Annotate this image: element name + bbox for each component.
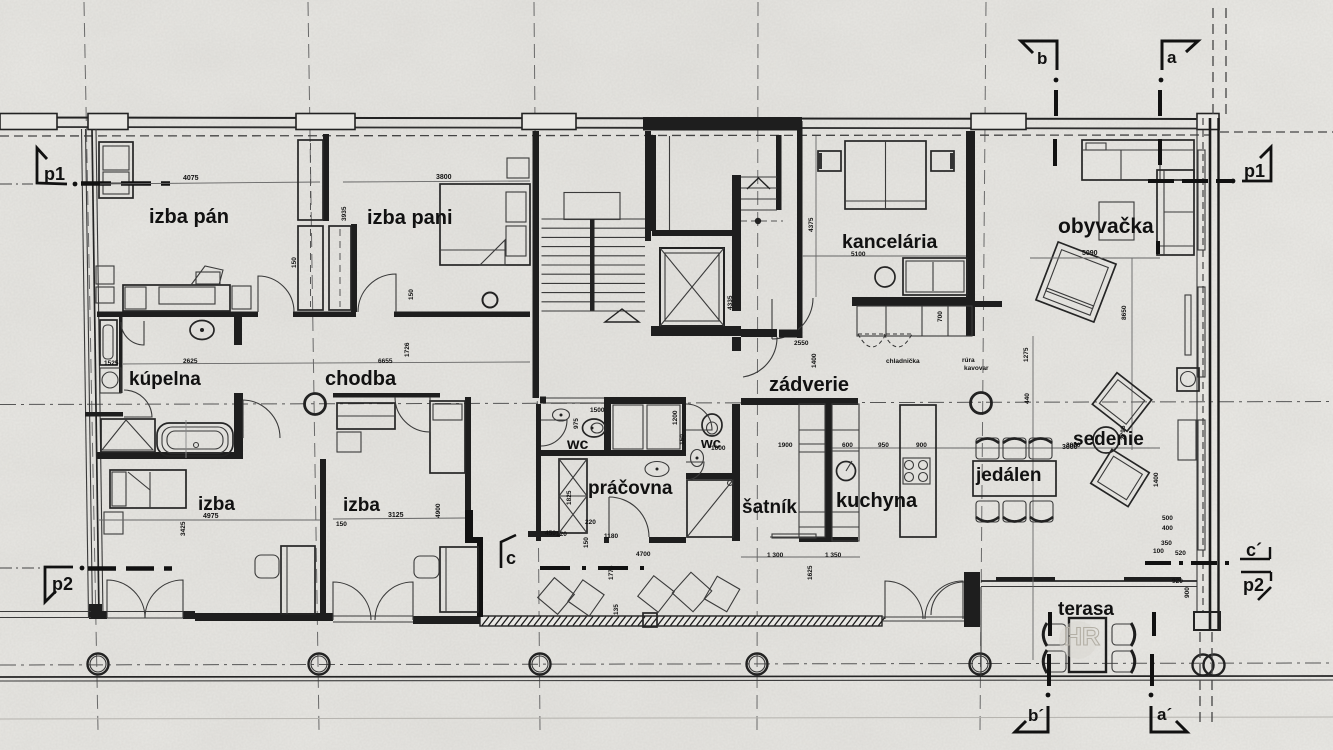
svg-text:chodba: chodba xyxy=(325,368,397,390)
svg-text:4700: 4700 xyxy=(636,551,651,558)
svg-text:4900: 4900 xyxy=(435,503,442,518)
svg-text:1775: 1775 xyxy=(608,565,615,580)
svg-text:975: 975 xyxy=(573,418,580,429)
svg-text:450: 450 xyxy=(545,530,556,537)
svg-text:c: c xyxy=(506,548,516,568)
svg-text:3125: 3125 xyxy=(388,512,404,519)
svg-text:2796: 2796 xyxy=(1120,425,1127,440)
svg-text:4375: 4375 xyxy=(808,217,815,232)
svg-text:100: 100 xyxy=(1153,548,1164,555)
svg-text:1400: 1400 xyxy=(1153,472,1160,487)
svg-text:900: 900 xyxy=(916,442,927,449)
svg-text:440: 440 xyxy=(1024,393,1031,404)
svg-text:kuchyna: kuchyna xyxy=(836,490,918,512)
svg-text:izba: izba xyxy=(198,494,235,515)
svg-text:1400: 1400 xyxy=(811,353,818,368)
svg-text:práčovna: práčovna xyxy=(588,478,673,499)
svg-text:obyvačka: obyvačka xyxy=(1058,215,1154,238)
svg-text:5100: 5100 xyxy=(851,251,866,258)
svg-text:1825: 1825 xyxy=(566,490,573,505)
svg-text:700: 700 xyxy=(937,311,944,322)
svg-text:220: 220 xyxy=(585,519,596,526)
svg-text:120: 120 xyxy=(556,531,567,538)
svg-text:4335: 4335 xyxy=(727,295,734,310)
svg-text:izba pani: izba pani xyxy=(367,207,453,229)
svg-text:p1: p1 xyxy=(1244,161,1265,181)
svg-text:kavovar: kavovar xyxy=(964,365,989,372)
svg-text:1525: 1525 xyxy=(104,360,119,367)
svg-text:a: a xyxy=(1167,48,1177,67)
svg-text:2550: 2550 xyxy=(794,340,809,347)
svg-text:rúra: rúra xyxy=(962,357,975,364)
svg-text:400: 400 xyxy=(1162,525,1173,532)
svg-text:5090: 5090 xyxy=(1082,250,1098,257)
svg-text:3000: 3000 xyxy=(1066,442,1081,449)
svg-text:6655: 6655 xyxy=(378,358,393,365)
svg-text:150: 150 xyxy=(583,537,590,548)
svg-text:150: 150 xyxy=(336,521,347,528)
svg-text:3425: 3425 xyxy=(180,521,187,536)
svg-text:900: 900 xyxy=(1184,587,1191,598)
svg-text:p2: p2 xyxy=(1243,575,1264,595)
svg-text:1900: 1900 xyxy=(778,442,793,449)
svg-text:p1: p1 xyxy=(44,164,65,184)
svg-text:950: 950 xyxy=(878,442,889,449)
svg-text:wc: wc xyxy=(566,436,588,453)
svg-text:a´: a´ xyxy=(1157,705,1172,724)
svg-text:izba pán: izba pán xyxy=(149,206,229,228)
svg-text:2625: 2625 xyxy=(183,358,198,365)
svg-text:1180: 1180 xyxy=(604,533,618,540)
svg-text:1 300: 1 300 xyxy=(767,552,784,559)
svg-text:3800: 3800 xyxy=(436,174,452,181)
svg-text:1 350: 1 350 xyxy=(825,552,842,559)
svg-text:zádverie: zádverie xyxy=(769,374,849,396)
svg-text:350: 350 xyxy=(1161,540,1172,547)
svg-text:500: 500 xyxy=(1162,515,1173,522)
svg-text:520: 520 xyxy=(1175,550,1186,557)
svg-text:p2: p2 xyxy=(52,574,73,594)
svg-text:4075: 4075 xyxy=(183,175,199,182)
svg-text:1000: 1000 xyxy=(711,445,726,452)
svg-text:jedálen: jedálen xyxy=(975,465,1041,486)
svg-text:sedenie: sedenie xyxy=(1073,429,1144,450)
svg-text:150: 150 xyxy=(408,289,415,300)
svg-text:1625: 1625 xyxy=(807,565,814,580)
svg-text:HR: HR xyxy=(1064,623,1100,651)
svg-text:izba: izba xyxy=(343,495,380,516)
svg-text:920: 920 xyxy=(1172,578,1183,585)
svg-text:1275: 1275 xyxy=(1023,347,1030,362)
svg-text:1200: 1200 xyxy=(672,410,679,425)
svg-text:kúpelna: kúpelna xyxy=(129,369,201,390)
svg-text:terasa: terasa xyxy=(1058,599,1114,620)
svg-text:1500: 1500 xyxy=(590,407,605,414)
svg-text:150: 150 xyxy=(679,434,686,445)
svg-text:135: 135 xyxy=(613,604,620,615)
svg-text:šatník: šatník xyxy=(742,497,797,518)
svg-text:b: b xyxy=(1037,49,1047,68)
svg-text:600: 600 xyxy=(842,442,853,449)
svg-text:c´: c´ xyxy=(1246,540,1262,560)
svg-text:kancelária: kancelária xyxy=(842,231,938,253)
svg-text:b´: b´ xyxy=(1028,706,1044,725)
svg-text:1726: 1726 xyxy=(404,342,411,357)
svg-text:8650: 8650 xyxy=(1121,305,1128,320)
svg-text:3935: 3935 xyxy=(341,206,348,221)
svg-text:chladnička: chladnička xyxy=(886,358,920,365)
svg-text:150: 150 xyxy=(291,257,298,268)
